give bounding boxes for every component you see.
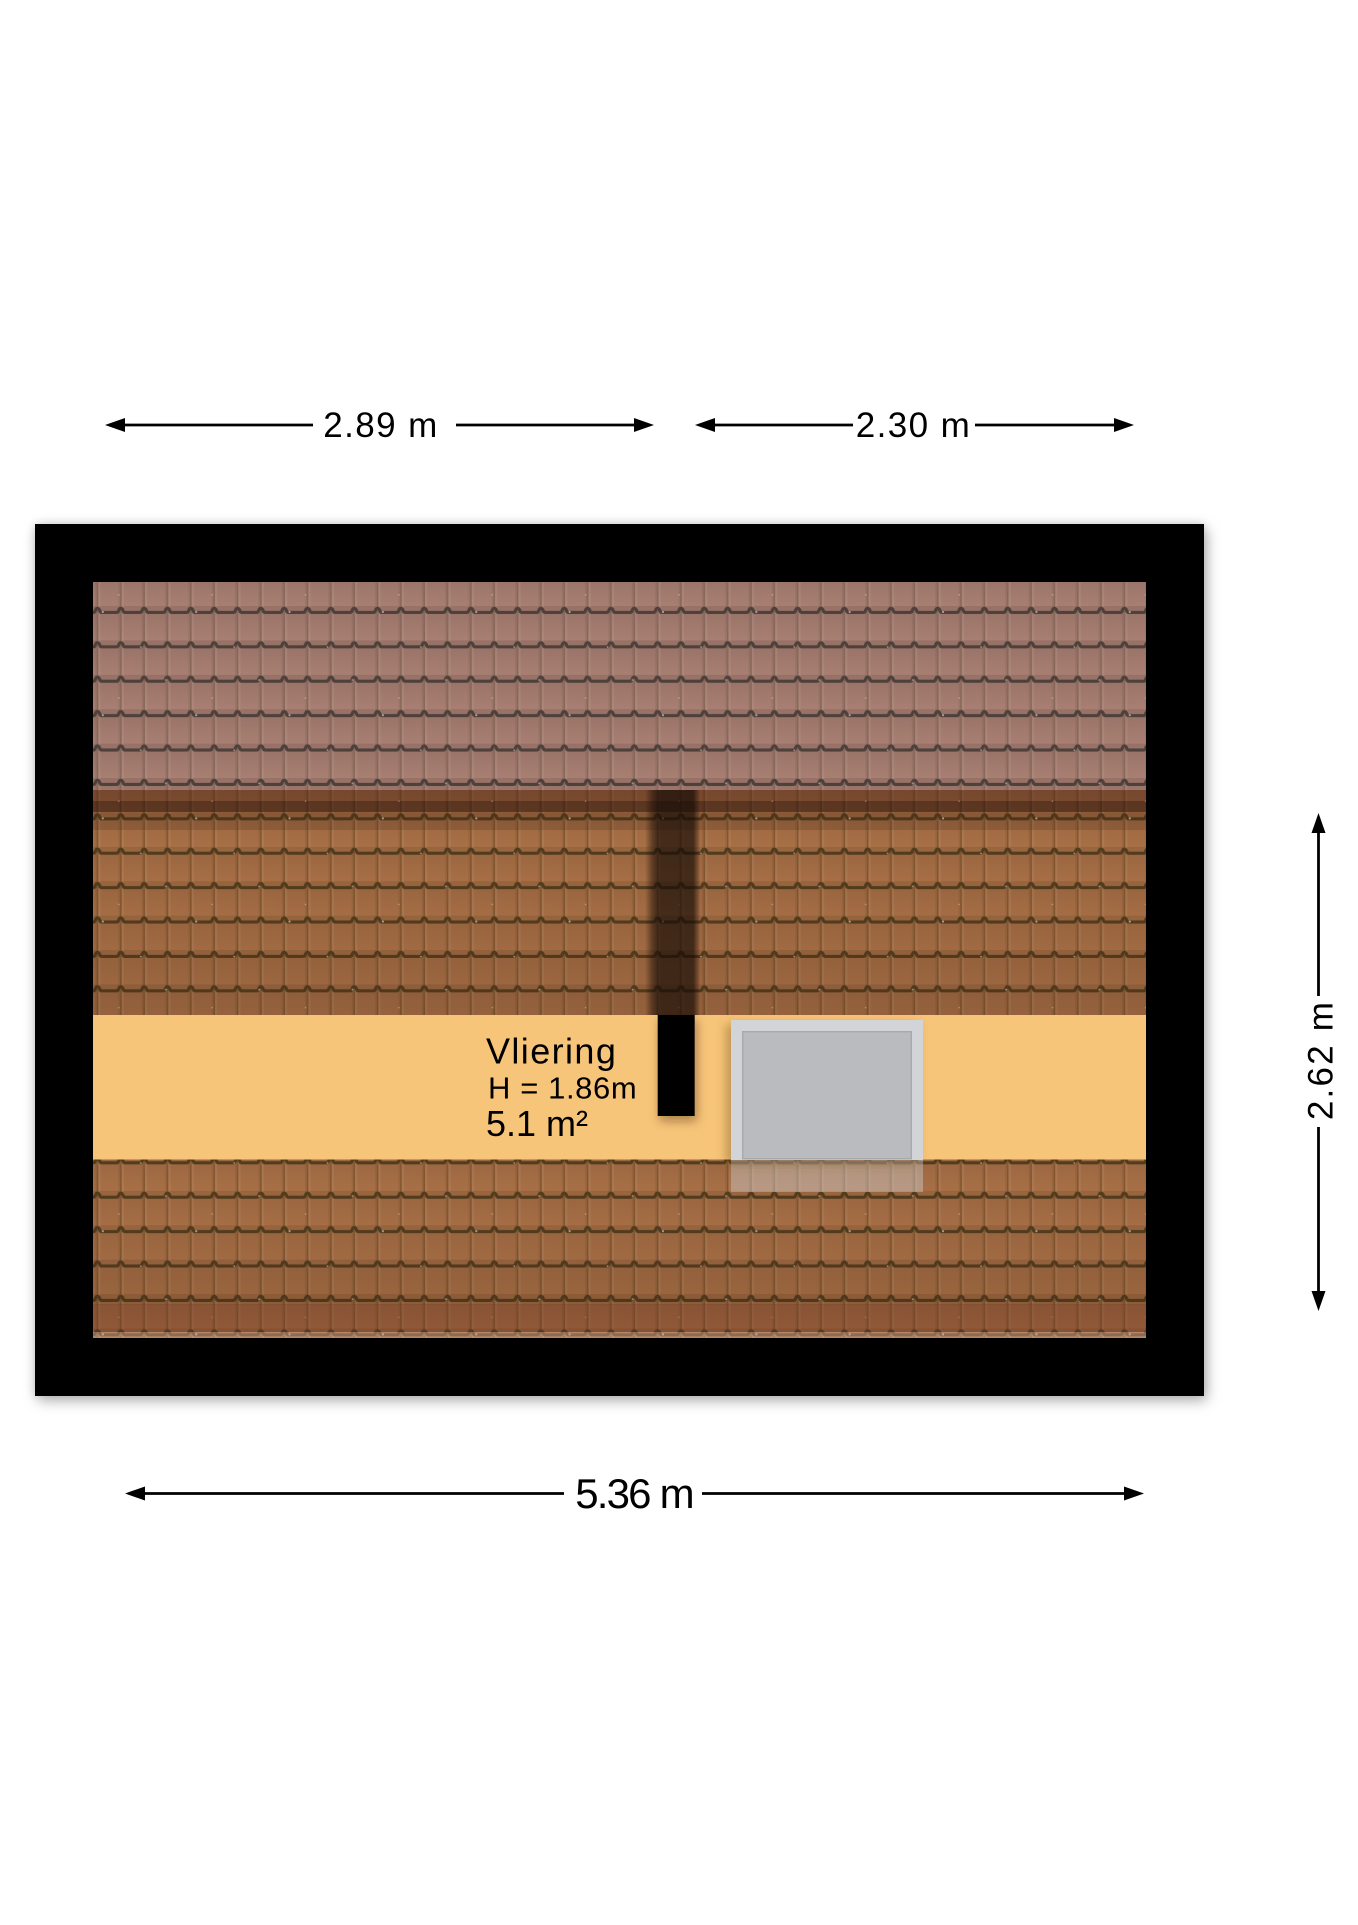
svg-text:2.62 m: 2.62 m: [1302, 1000, 1341, 1120]
svg-text:H = 1.86m: H = 1.86m: [488, 1071, 637, 1106]
svg-text:5.1 m²: 5.1 m²: [486, 1103, 588, 1144]
svg-text:2.89 m: 2.89 m: [323, 406, 438, 445]
svg-text:5.36 m: 5.36 m: [575, 1470, 693, 1517]
svg-text:2.30 m: 2.30 m: [856, 406, 971, 445]
svg-text:Vliering: Vliering: [486, 1031, 617, 1072]
